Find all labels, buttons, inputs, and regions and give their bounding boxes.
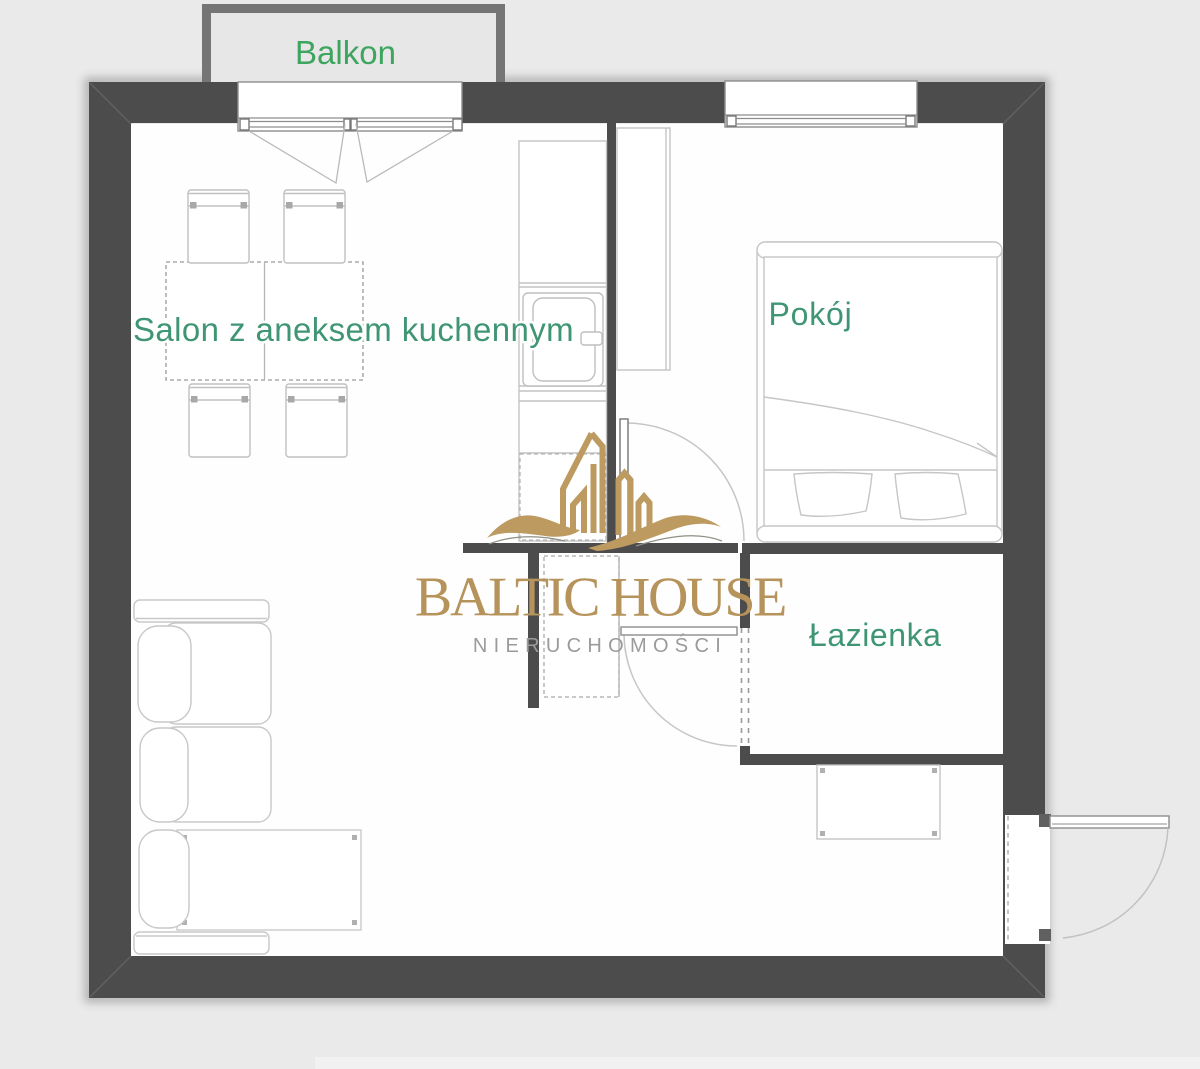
svg-text:Salon z aneksem kuchennym: Salon z aneksem kuchennym	[133, 311, 574, 348]
svg-text:NIERUCHOMOŚCI: NIERUCHOMOŚCI	[473, 633, 727, 657]
svg-text:BALTIC HOUSE: BALTIC HOUSE	[415, 567, 785, 629]
svg-text:Balkon: Balkon	[295, 34, 396, 71]
svg-text:Pokój: Pokój	[769, 296, 853, 332]
svg-text:Łazienka: Łazienka	[809, 617, 942, 653]
